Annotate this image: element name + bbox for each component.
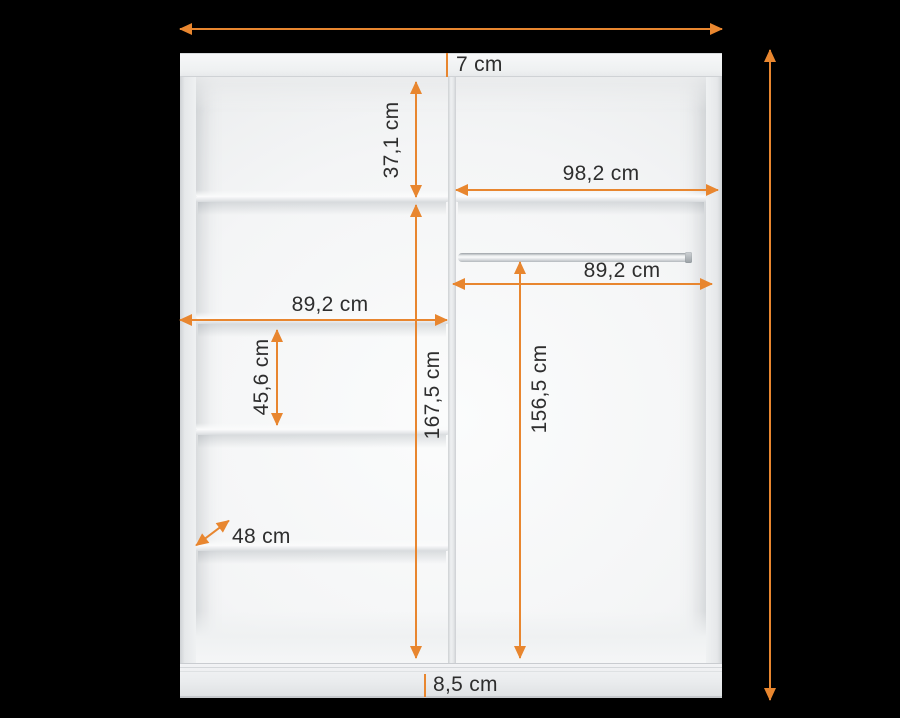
- top-panel-tick: [446, 53, 448, 77]
- dim-label-hanging-rod-width: 89,2 cm: [584, 260, 661, 282]
- dim-label-left-shelf-width: 89,2 cm: [292, 294, 369, 316]
- left-section-height-arrow: [415, 205, 417, 658]
- dim-label-top-panel-thickness: 7 cm: [456, 54, 503, 76]
- plinth-tick: [424, 674, 426, 697]
- dim-label-right-section-width: 98,2 cm: [563, 163, 640, 185]
- left-shelf-width-arrow: [180, 319, 447, 321]
- middle-shelf-gap-arrow: [276, 330, 278, 425]
- dim-label-plinth-height: 8,5 cm: [433, 674, 498, 696]
- center-divider-panel: [448, 77, 456, 663]
- dim-label-middle-shelf-gap: 45,6 cm: [251, 339, 273, 416]
- dim-label-upper-shelf-gap: 37,1 cm: [381, 102, 403, 179]
- right-shelf: [456, 196, 706, 202]
- hanging-rod-width-arrow: [453, 283, 712, 285]
- right-side-panel: [706, 77, 722, 663]
- total-width-arrow: [180, 28, 722, 30]
- hanging-space-height-arrow: [519, 262, 521, 658]
- total-height-arrow: [769, 50, 771, 700]
- upper-shelf-gap-arrow: [415, 82, 417, 197]
- dim-label-hanging-space-height: 156,5 cm: [529, 345, 551, 434]
- left-shelf-3: [196, 429, 448, 435]
- dimension-diagram: 7 cm 37,1 cm 98,2 cm 89,2 cm 89,2 cm 167…: [0, 0, 900, 718]
- right-section-width-arrow: [456, 189, 718, 191]
- left-side-panel: [180, 77, 196, 663]
- top-panel: [180, 53, 722, 77]
- dim-label-depth: 48 cm: [232, 526, 291, 548]
- dim-label-left-section-height: 167,5 cm: [422, 351, 444, 440]
